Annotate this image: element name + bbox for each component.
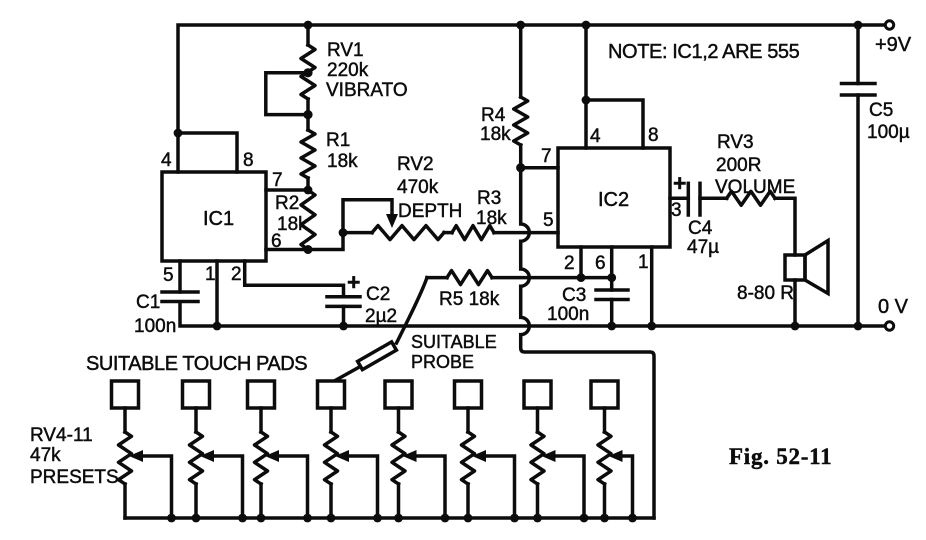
- svg-text:R4: R4: [481, 105, 506, 126]
- svg-text:DEPTH: DEPTH: [398, 201, 462, 222]
- svg-text:R5 18k: R5 18k: [439, 289, 500, 310]
- svg-text:+9V: +9V: [875, 34, 912, 56]
- svg-text:1: 1: [205, 264, 216, 285]
- svg-text:IC1: IC1: [203, 208, 234, 230]
- svg-text:RV3: RV3: [717, 132, 754, 153]
- svg-text:RV2: RV2: [397, 154, 434, 175]
- svg-text:8: 8: [243, 150, 254, 171]
- svg-text:0 V: 0 V: [878, 296, 909, 318]
- svg-text:1: 1: [638, 252, 649, 273]
- svg-text:+: +: [673, 170, 686, 196]
- svg-text:3: 3: [671, 200, 682, 221]
- svg-text:C1: C1: [136, 292, 160, 313]
- svg-text:IC2: IC2: [598, 189, 629, 211]
- svg-text:47k: 47k: [30, 445, 61, 466]
- svg-text:R2: R2: [275, 193, 299, 214]
- svg-text:R1: R1: [326, 130, 350, 151]
- svg-text:200R: 200R: [716, 155, 761, 176]
- svg-text:8: 8: [648, 125, 659, 146]
- svg-text:100n: 100n: [134, 316, 176, 337]
- svg-text:7: 7: [272, 170, 283, 191]
- svg-text:2: 2: [231, 264, 242, 285]
- svg-text:+: +: [347, 269, 360, 295]
- svg-text:C5: C5: [869, 100, 893, 121]
- svg-text:PROBE: PROBE: [411, 352, 474, 372]
- svg-text:VOLUME: VOLUME: [715, 177, 795, 198]
- svg-text:5: 5: [543, 210, 554, 231]
- svg-text:470k: 470k: [397, 177, 439, 198]
- svg-text:5: 5: [163, 265, 174, 286]
- svg-text:NOTE: IC1,2 ARE 555: NOTE: IC1,2 ARE 555: [608, 41, 800, 63]
- svg-text:18k: 18k: [327, 151, 358, 172]
- svg-text:C3: C3: [562, 285, 586, 306]
- svg-text:R3: R3: [477, 188, 501, 209]
- svg-text:47µ: 47µ: [687, 237, 719, 258]
- svg-text:220k: 220k: [327, 60, 369, 81]
- svg-text:100n: 100n: [547, 304, 589, 325]
- svg-text:RV1: RV1: [327, 40, 364, 61]
- svg-text:4: 4: [161, 150, 172, 171]
- svg-text:7: 7: [541, 146, 552, 167]
- svg-text:2µ2: 2µ2: [365, 306, 397, 327]
- svg-text:SUITABLE: SUITABLE: [411, 332, 497, 352]
- svg-text:18k: 18k: [476, 208, 507, 229]
- svg-text:C4: C4: [688, 218, 713, 239]
- svg-text:18k: 18k: [277, 214, 308, 235]
- svg-text:SUITABLE TOUCH PADS: SUITABLE TOUCH PADS: [86, 353, 307, 375]
- svg-text:2: 2: [564, 253, 575, 274]
- svg-text:Fig. 52-11: Fig. 52-11: [729, 444, 832, 469]
- svg-text:PRESETS: PRESETS: [30, 467, 119, 488]
- svg-text:100µ: 100µ: [867, 122, 910, 143]
- svg-text:C2: C2: [366, 284, 390, 305]
- svg-text:6: 6: [595, 253, 606, 274]
- svg-text:18k: 18k: [480, 124, 511, 145]
- svg-text:8-80 R: 8-80 R: [737, 283, 794, 304]
- svg-text:4: 4: [590, 126, 601, 147]
- svg-text:VIBRATO: VIBRATO: [326, 80, 408, 101]
- svg-text:RV4-11: RV4-11: [30, 425, 93, 446]
